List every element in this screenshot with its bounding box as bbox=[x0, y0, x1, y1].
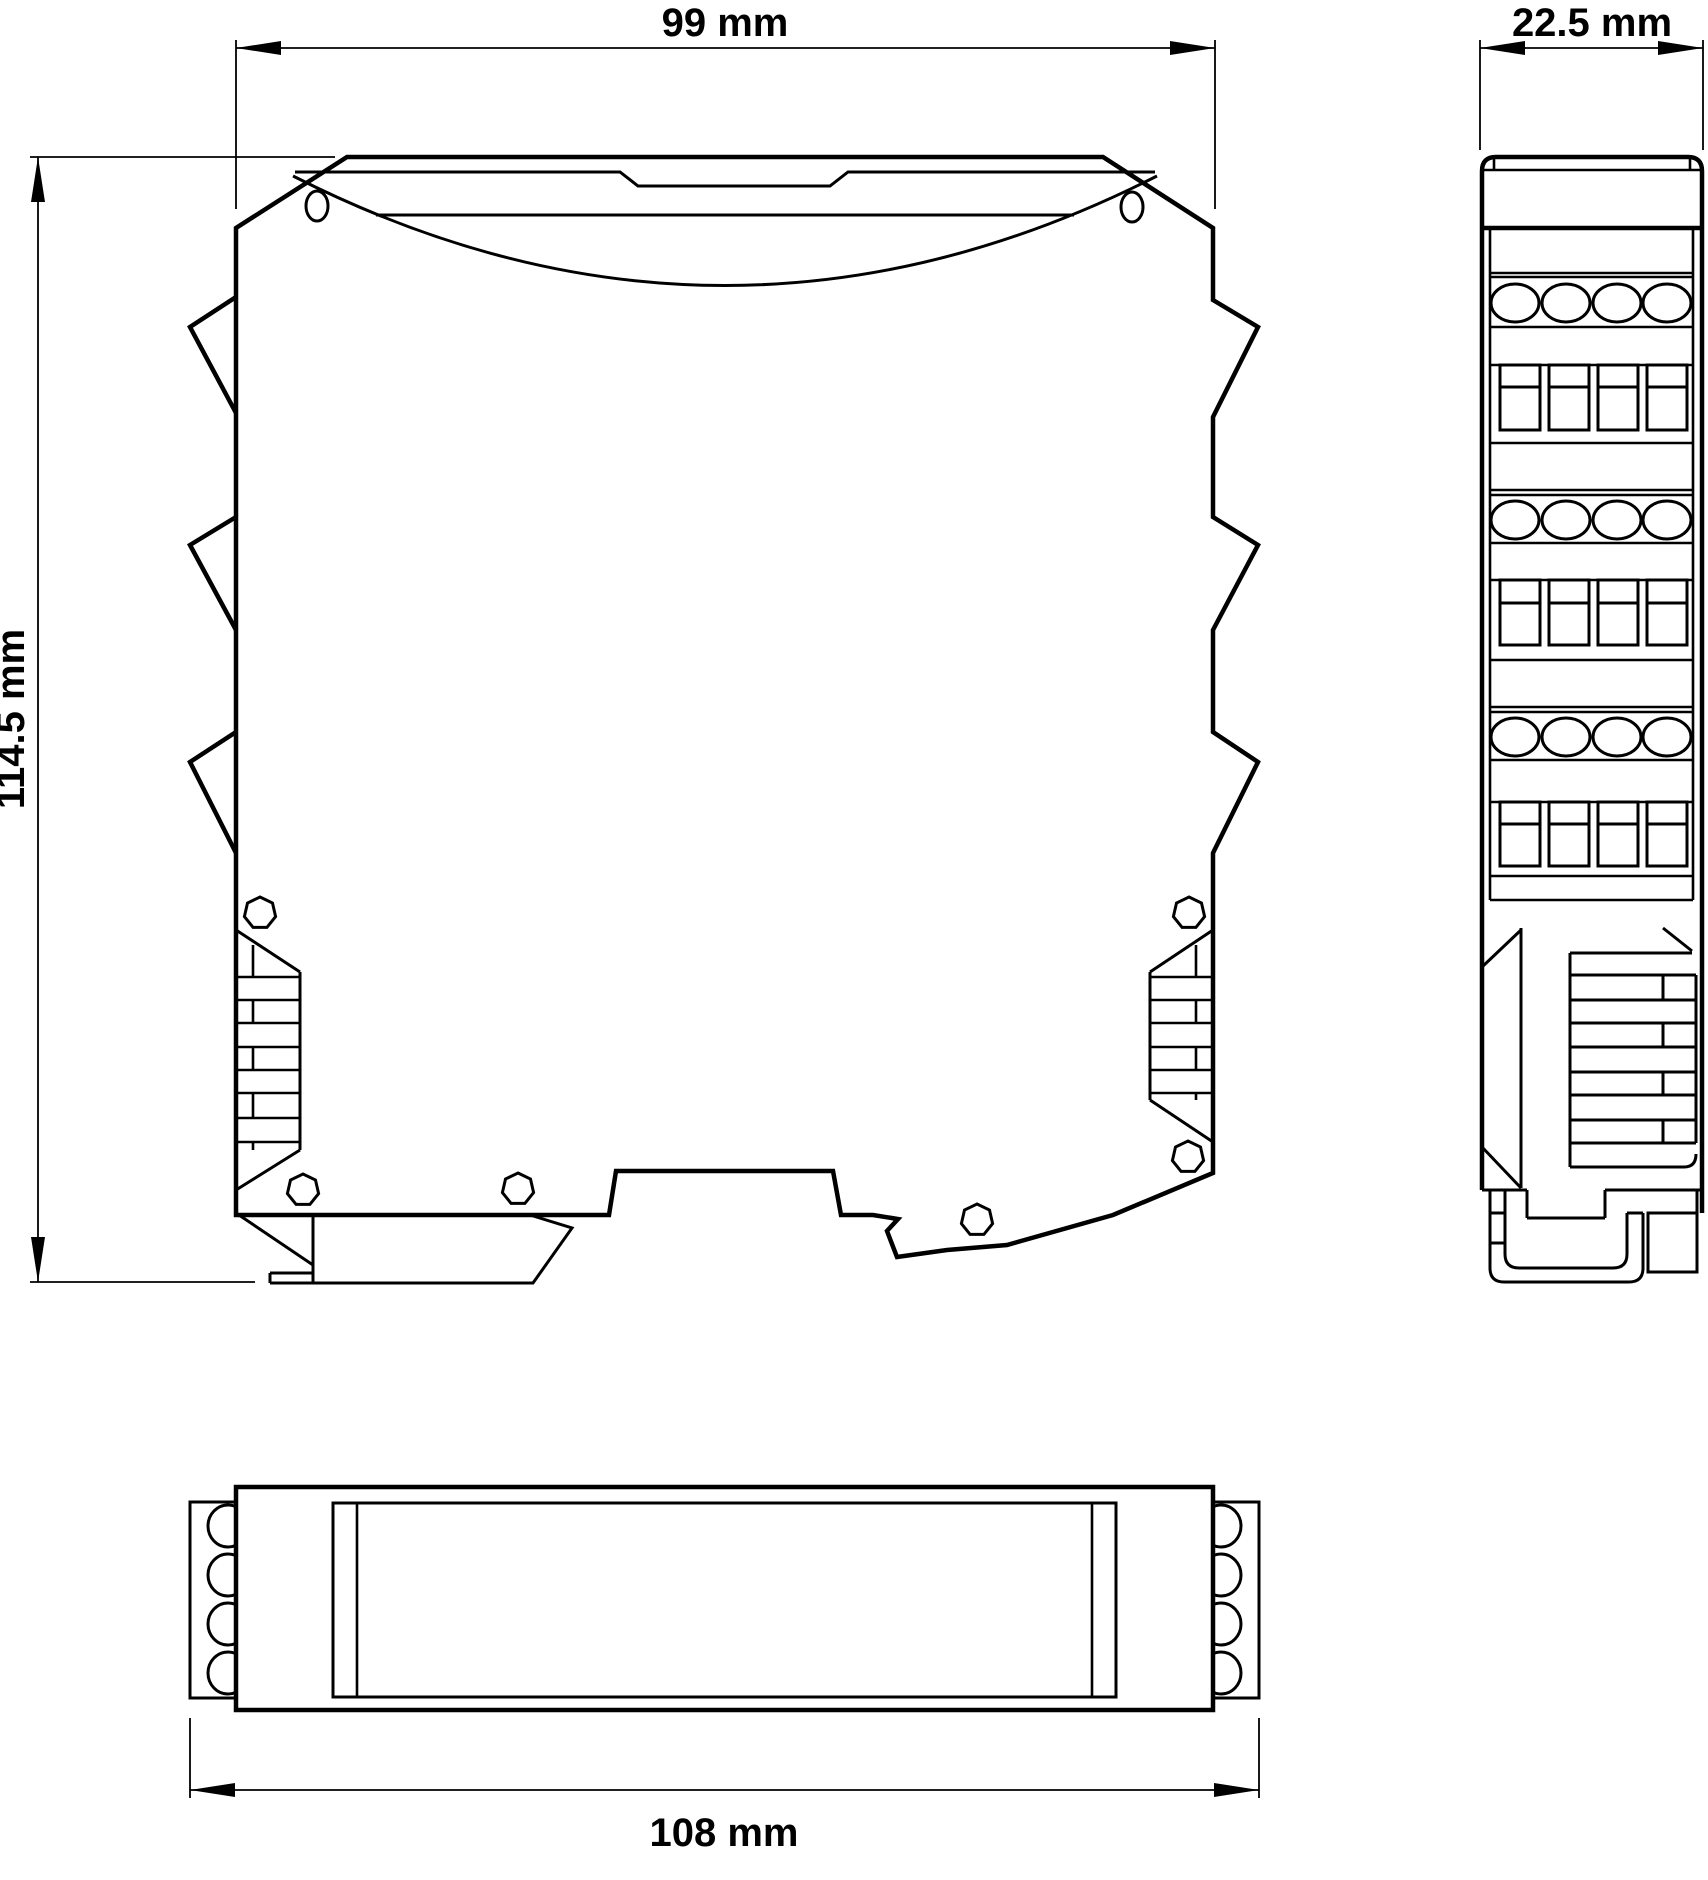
front-height-label: 114.5 mm bbox=[0, 629, 33, 809]
side-depth-label: 22.5 mm bbox=[1512, 1, 1672, 45]
technical-drawing: 99 mm 22.5 mm 114.5 mm 108 mm bbox=[0, 0, 1708, 1880]
bottom-length-label: 108 mm bbox=[650, 1811, 799, 1855]
front-width-label: 99 mm bbox=[662, 1, 789, 45]
drawing-background bbox=[0, 0, 1708, 1880]
